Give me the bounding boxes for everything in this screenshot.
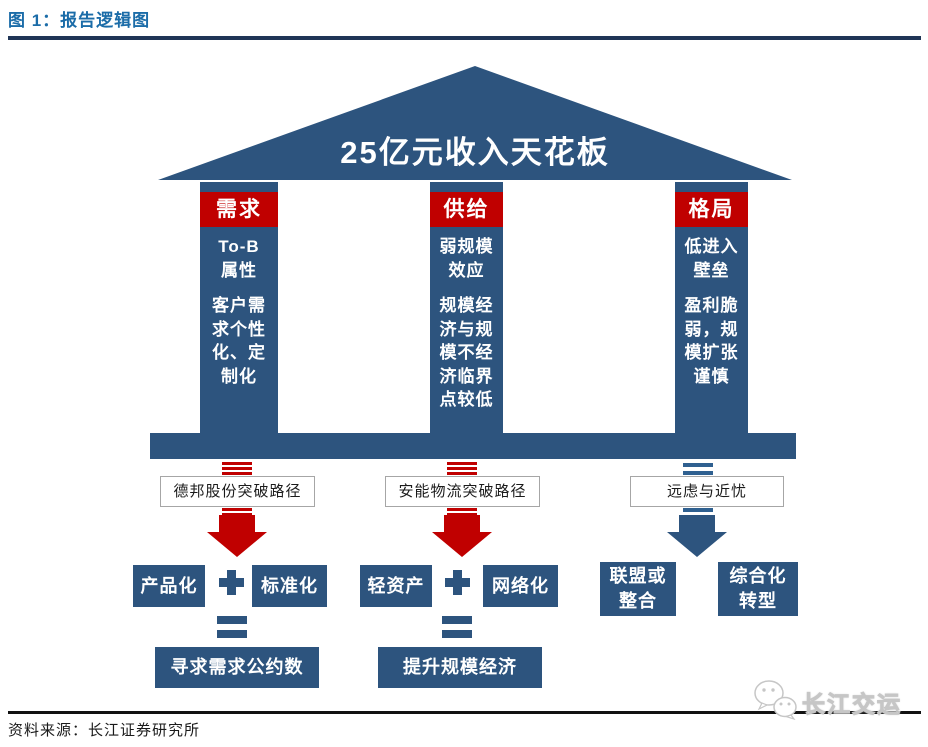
down-arrow-red-anneng	[432, 515, 492, 557]
title-underline	[8, 36, 921, 40]
figure-canvas: 图 1：报告逻辑图 25亿元收入天花板 需求 To-B属性客户需求个性化、定制化…	[0, 0, 928, 747]
pillar-landscape-text: 低进入壁垒盈利脆弱，规模扩张谨慎	[675, 235, 748, 388]
result-box-demand-common-divisor: 寻求需求公约数	[155, 647, 319, 688]
roof-label: 25亿元收入天花板	[158, 127, 792, 172]
figure-title: 图 1：报告逻辑图	[8, 6, 150, 31]
box-asset-light: 轻资产	[360, 565, 432, 607]
down-arrow-red-debang	[207, 515, 267, 557]
plus-icon	[445, 570, 470, 595]
plus-icon	[219, 570, 244, 595]
equals-icon	[442, 616, 472, 638]
path-label-debang: 德邦股份突破路径	[160, 476, 315, 507]
path-label-concerns: 远虑与近忧	[630, 476, 784, 507]
stylobate-bar	[150, 433, 796, 459]
pillar-landscape-header: 格局	[675, 192, 748, 227]
box-comprehensive-transformation: 综合化转型	[718, 562, 798, 616]
pillar-demand: 需求 To-B属性客户需求个性化、定制化	[200, 182, 278, 433]
box-standardization: 标准化	[252, 565, 327, 607]
connector-stripes-debang	[222, 462, 252, 477]
source-note: 资料来源：长江证券研究所	[8, 719, 200, 740]
pillar-landscape: 格局 低进入壁垒盈利脆弱，规模扩张谨慎	[675, 182, 748, 433]
watermark-text: 长江交运	[802, 685, 902, 719]
path-label-anneng: 安能物流突破路径	[385, 476, 540, 507]
connector-stripes-anneng	[447, 462, 477, 477]
box-networking: 网络化	[483, 565, 558, 607]
pillar-supply-header: 供给	[430, 192, 503, 227]
pillar-supply: 供给 弱规模效应规模经济与规模不经济临界点较低	[430, 182, 503, 433]
down-arrow-blue-concerns	[667, 515, 727, 557]
box-productization: 产品化	[133, 565, 205, 607]
equals-icon	[217, 616, 247, 638]
wechat-icon	[750, 678, 802, 725]
pillar-demand-header: 需求	[200, 192, 278, 227]
pillar-demand-text: To-B属性客户需求个性化、定制化	[200, 235, 278, 388]
watermark-logo: 长江交运	[750, 678, 902, 725]
result-box-scale-economy: 提升规模经济	[378, 647, 542, 688]
pillar-supply-text: 弱规模效应规模经济与规模不经济临界点较低	[430, 235, 503, 412]
box-alliance-integration: 联盟或整合	[600, 562, 676, 616]
